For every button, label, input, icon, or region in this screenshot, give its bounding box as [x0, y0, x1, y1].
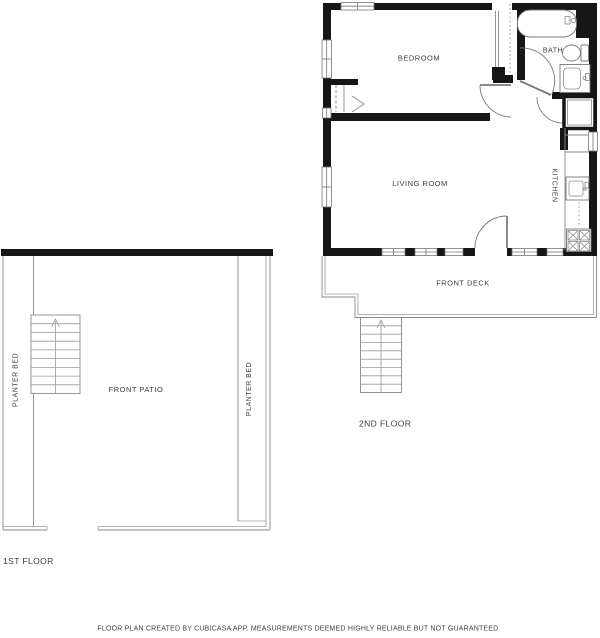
kitchen-sink-icon	[566, 177, 589, 200]
kitchen-label: KITCHEN	[551, 168, 558, 202]
window-icon	[547, 249, 563, 256]
bedroom-door-swing-icon	[480, 85, 511, 117]
window-icon	[445, 249, 463, 256]
window-icon	[323, 108, 332, 118]
second-floor-title: 2ND FLOOR	[359, 419, 411, 429]
second-floor-plan: BEDROOM BATH LIVING ROOM KITCHEN FRONT D…	[322, 3, 598, 429]
planter-bed-left-label: PLANTER BED	[13, 353, 20, 407]
bath-door-swing-icon	[520, 48, 555, 95]
floor-plan-page: BEDROOM BATH LIVING ROOM KITCHEN FRONT D…	[0, 0, 600, 638]
first-floor-wall	[1, 249, 273, 256]
floor-plan-drawing: BEDROOM BATH LIVING ROOM KITCHEN FRONT D…	[0, 0, 600, 638]
window-icon	[341, 3, 374, 11]
second-floor-walls	[323, 3, 597, 256]
stairs-icon	[31, 315, 80, 394]
bedroom-label: BEDROOM	[398, 54, 440, 63]
stairs-icon	[361, 318, 402, 393]
wardrobe-niche	[492, 3, 512, 11]
window-icon	[322, 40, 332, 78]
shower-icon	[564, 97, 595, 129]
first-floor-title: 1ST FLOOR	[3, 556, 54, 566]
front-patio-label: FRONT PATIO	[109, 385, 164, 394]
planter-bed-right-label: PLANTER BED	[246, 362, 253, 416]
stove-icon	[567, 229, 592, 252]
bath-label: BATH	[543, 48, 563, 55]
first-floor-plan: FRONT PATIO PLANTER BED PLANTER BED 1ST …	[1, 249, 273, 566]
window-icon	[382, 249, 405, 256]
wardrobe-icon	[496, 4, 511, 75]
shower-door-swing-icon	[537, 97, 563, 123]
deck-door-swing-icon	[475, 216, 507, 248]
closet-bifold-icon	[336, 85, 364, 112]
window-icon	[322, 167, 332, 207]
window-icon	[512, 249, 537, 256]
bathtub-icon	[518, 10, 577, 37]
toilet-icon	[563, 45, 589, 61]
second-floor-windows	[322, 3, 598, 257]
living-room-label: LIVING ROOM	[392, 179, 448, 188]
deck-door-opening	[475, 248, 507, 256]
front-deck-label: FRONT DECK	[436, 279, 490, 288]
window-icon	[415, 249, 437, 256]
bathroom-sink-icon	[560, 65, 590, 93]
footer-disclaimer: FLOOR PLAN CREATED BY CUBICASA APP. MEAS…	[97, 626, 500, 633]
window-icon	[589, 132, 598, 151]
